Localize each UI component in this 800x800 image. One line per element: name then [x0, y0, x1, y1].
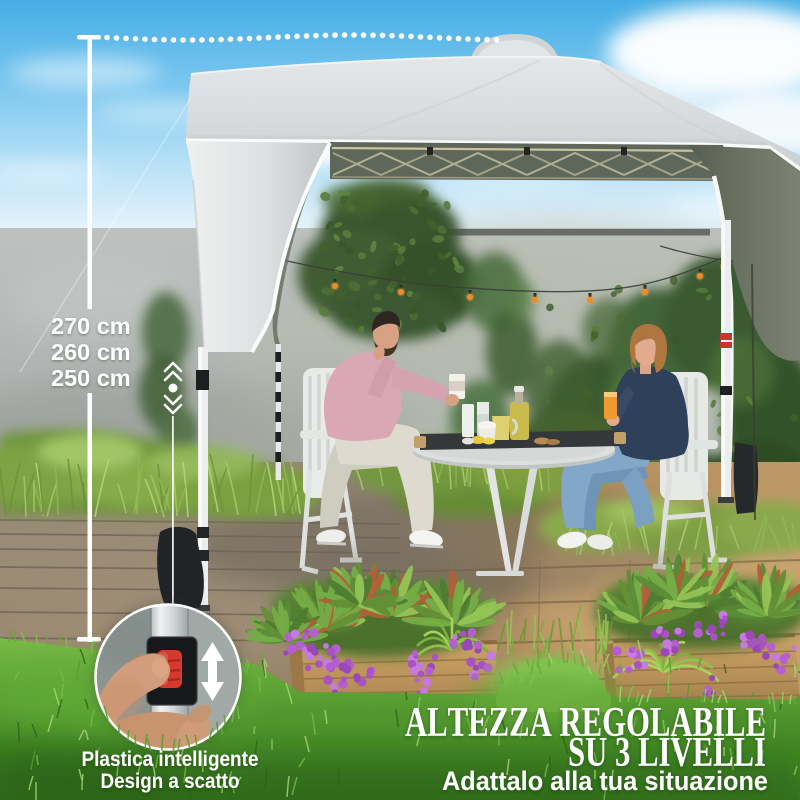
svg-text:250 cm: 250 cm [51, 365, 131, 391]
svg-text:Plastica intelligente: Plastica intelligente [82, 747, 259, 771]
svg-text:Design a scatto: Design a scatto [101, 769, 240, 793]
svg-text:Adattalo alla tua situazione: Adattalo alla tua situazione [442, 766, 768, 796]
svg-text:270 cm: 270 cm [51, 313, 131, 339]
svg-text:260 cm: 260 cm [51, 339, 131, 365]
